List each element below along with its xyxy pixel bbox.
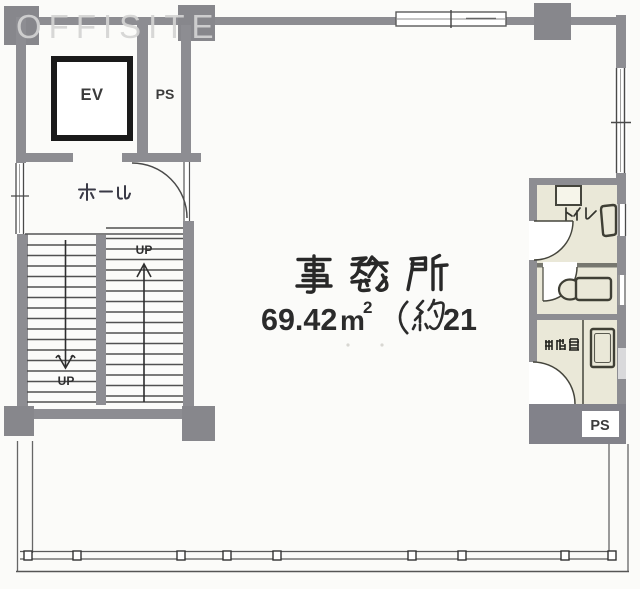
svg-text:2: 2	[363, 298, 372, 317]
svg-text:UP: UP	[58, 374, 75, 388]
svg-text:EV: EV	[80, 86, 103, 104]
svg-text:PS: PS	[590, 418, 610, 434]
svg-text:UP: UP	[136, 243, 153, 257]
svg-text:21: 21	[443, 303, 477, 337]
svg-text:OFFISITE: OFFISITE	[16, 8, 221, 45]
svg-text:69.42: 69.42	[261, 303, 337, 337]
svg-text:m: m	[340, 305, 365, 336]
svg-text:PS: PS	[156, 86, 175, 102]
